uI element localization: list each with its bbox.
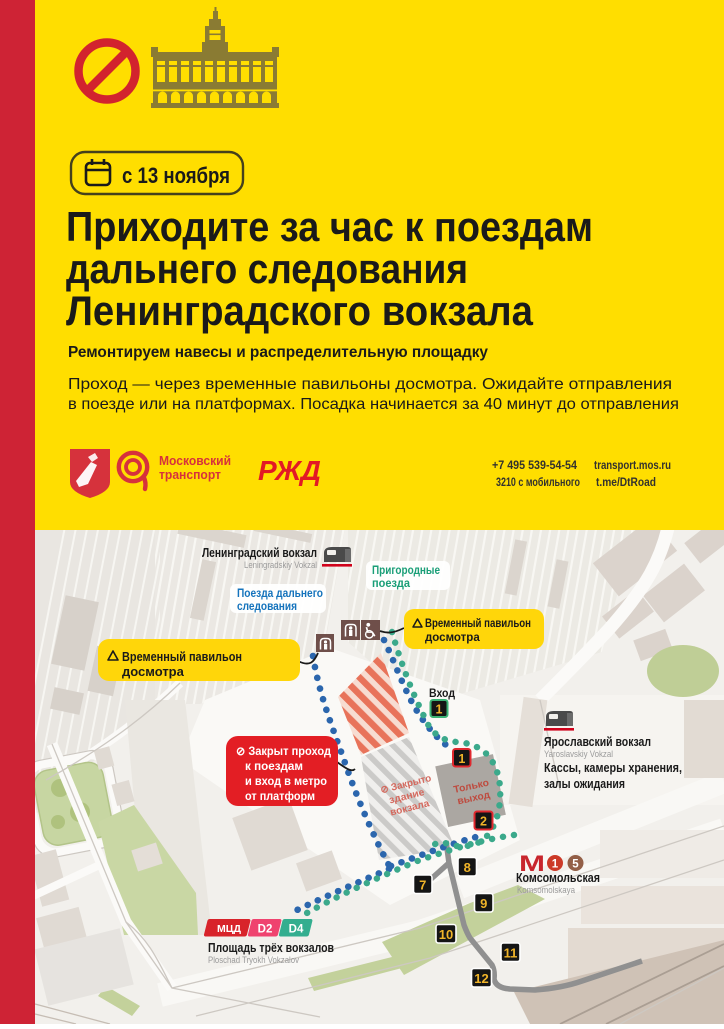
svg-text:следования: следования — [237, 599, 297, 613]
svg-text:t.me/DtRoad: t.me/DtRoad — [596, 477, 656, 489]
svg-text:Ploschad Tryokh Vokzalov: Ploschad Tryokh Vokzalov — [208, 955, 299, 966]
svg-text:в поезде или на платформах. По: в поезде или на платформах. Посадка начи… — [68, 396, 679, 413]
svg-text:поезда: поезда — [372, 576, 410, 590]
svg-text:Приходите за час к поездам: Приходите за час к поездам — [66, 203, 593, 250]
svg-text:Ленинградского вокзала: Ленинградского вокзала — [66, 287, 534, 334]
svg-text:Ремонтируем навесы и распредел: Ремонтируем навесы и распределительную п… — [68, 344, 488, 361]
svg-text:2: 2 — [480, 815, 487, 829]
svg-text:5: 5 — [572, 859, 579, 871]
svg-text:с 13 ноября: с 13 ноября — [122, 163, 230, 188]
svg-text:8: 8 — [464, 860, 471, 875]
svg-text:МЦД: МЦД — [217, 923, 241, 935]
svg-text:Московский: Московский — [159, 453, 231, 468]
svg-text:Временный павильон: Временный павильон — [425, 618, 531, 630]
svg-text:Yaroslavskiy Vokzal: Yaroslavskiy Vokzal — [544, 749, 613, 760]
svg-text:досмотра: досмотра — [425, 632, 480, 644]
svg-text:7: 7 — [419, 878, 426, 893]
svg-text:12: 12 — [474, 971, 488, 986]
svg-text:Площадь трёх вокзалов: Площадь трёх вокзалов — [208, 940, 334, 955]
svg-text:досмотра: досмотра — [122, 664, 185, 679]
svg-text:D2: D2 — [258, 924, 273, 936]
svg-text:Ленинградский вокзал: Ленинградский вокзал — [202, 545, 317, 560]
svg-text:и вход в метро: и вход в метро — [245, 776, 327, 788]
svg-text:Комсомольская: Комсомольская — [516, 871, 600, 885]
svg-text:к поездам: к поездам — [245, 761, 303, 773]
svg-text:+7 495 539-54-54: +7 495 539-54-54 — [492, 460, 578, 472]
svg-text:Leningradskiy Vokzal: Leningradskiy Vokzal — [244, 560, 317, 571]
svg-text:залы ожидания: залы ожидания — [544, 776, 625, 791]
svg-text:Пригородные: Пригородные — [372, 563, 440, 577]
svg-text:transport.mos.ru: transport.mos.ru — [594, 460, 671, 472]
svg-text:D4: D4 — [289, 924, 304, 936]
svg-text:10: 10 — [439, 927, 453, 942]
svg-text:1: 1 — [458, 752, 465, 766]
svg-text:Вход: Вход — [429, 686, 455, 700]
svg-text:Ярославский вокзал: Ярославский вокзал — [544, 734, 651, 749]
svg-text:Временный павильон: Временный павильон — [122, 649, 242, 664]
svg-text:9: 9 — [480, 896, 487, 911]
svg-text:Проход — через временные павил: Проход — через временные павильоны досмо… — [68, 376, 672, 393]
svg-text:11: 11 — [504, 946, 518, 961]
svg-text:1: 1 — [552, 859, 559, 871]
svg-text:от платформ: от платформ — [245, 791, 315, 803]
svg-text:дальнего следования: дальнего следования — [66, 245, 468, 292]
svg-text:Komsomolskaya: Komsomolskaya — [517, 885, 576, 896]
svg-text:Поезда дальнего: Поезда дальнего — [237, 586, 323, 600]
svg-text:Кассы, камеры хранения,: Кассы, камеры хранения, — [544, 760, 682, 775]
svg-text:⊘ Закрыт проход: ⊘ Закрыт проход — [236, 746, 332, 758]
svg-text:РЖД: РЖД — [258, 455, 321, 486]
svg-text:1: 1 — [436, 703, 443, 717]
svg-text:3210 с мобильного: 3210 с мобильного — [496, 477, 580, 489]
svg-text:транспорт: транспорт — [159, 467, 221, 482]
